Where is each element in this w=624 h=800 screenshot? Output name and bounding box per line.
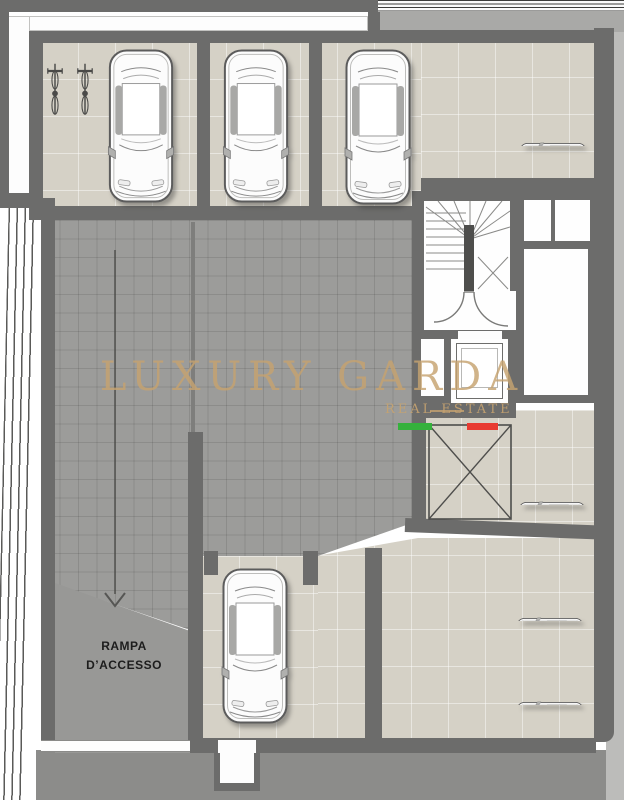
storage-room-a2 xyxy=(555,200,590,241)
wall-stair-top xyxy=(412,191,520,201)
wall-garage-left-upper xyxy=(29,31,43,201)
light-well-top xyxy=(8,16,368,31)
wall-under-top-stalls xyxy=(29,206,421,220)
watermark-title: LUXURY GARDA xyxy=(92,354,532,404)
elevator-door-slit xyxy=(458,331,502,339)
section-stripes-band xyxy=(378,0,624,11)
staircase-icon xyxy=(424,201,510,291)
car-icon-7 xyxy=(426,637,584,705)
light-box-inner xyxy=(220,753,254,783)
car-icon-6 xyxy=(426,553,584,621)
car-icon-2 xyxy=(222,48,290,204)
wall-stall-divider-2 xyxy=(309,43,322,211)
bicycle-icon-1 xyxy=(46,58,64,120)
bicycle-icon-2 xyxy=(76,58,94,120)
ramp-arrow-head-icon xyxy=(104,592,126,608)
flag-green-bar xyxy=(398,423,432,430)
wall-mid-vertical xyxy=(188,432,203,740)
wall-garage-right xyxy=(594,28,614,742)
car-icon-8 xyxy=(221,566,289,726)
wall-garage-top-right xyxy=(368,30,596,43)
wall-garage-top-left xyxy=(29,31,368,43)
light-well-left xyxy=(8,16,30,197)
wall-left-outer xyxy=(0,12,9,196)
flag-red-bar xyxy=(467,423,498,430)
wall-under-topright-stall xyxy=(421,178,596,191)
floor-plan: RAMPA D’ACCESSO xyxy=(0,0,624,800)
ramp-label-line1: RAMPA xyxy=(68,637,180,656)
car-icon-1 xyxy=(107,48,175,204)
wall-bottom-divider xyxy=(365,548,382,740)
upper-terrace-gray xyxy=(368,11,624,32)
wall-garage-left-lower xyxy=(41,198,55,743)
ramp-label: RAMPA D’ACCESSO xyxy=(68,637,180,679)
wall-stall-divider-1 xyxy=(197,43,210,211)
watermark-strike-line xyxy=(430,410,464,412)
parking-floor-bottom-right xyxy=(300,518,596,742)
light-box-slit xyxy=(218,740,256,753)
crossed-space-marker xyxy=(428,424,512,520)
storage-room-a1 xyxy=(524,200,551,241)
car-icon-3 xyxy=(344,48,412,206)
outside-ground xyxy=(36,750,614,800)
ramp-label-line2: D’ACCESSO xyxy=(68,656,180,675)
garage-door-opening xyxy=(41,740,190,752)
pillar-right xyxy=(303,551,318,585)
storage-room-b xyxy=(524,249,588,395)
wall-top-band xyxy=(0,0,378,12)
retaining-wall-hatch xyxy=(0,196,35,800)
ramp-direction-line xyxy=(114,250,116,594)
pillar-left xyxy=(204,551,218,575)
car-icon-4 xyxy=(429,78,587,146)
